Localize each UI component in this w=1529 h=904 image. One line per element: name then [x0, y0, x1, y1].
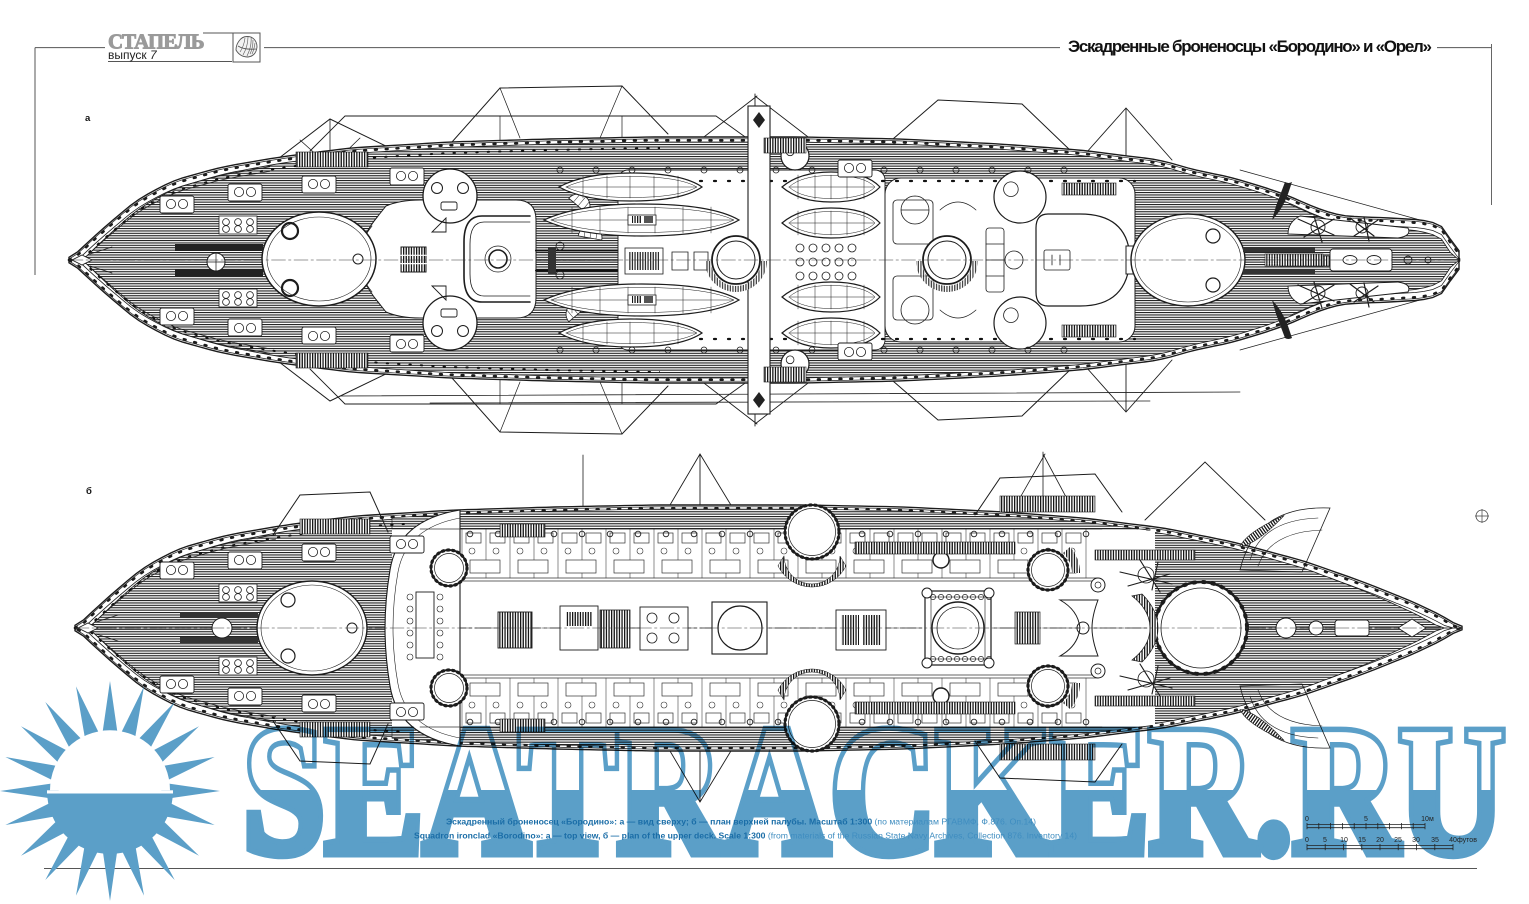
svg-text:25: 25 [1394, 837, 1402, 844]
svg-text:Squadron ironclad «Borodino»:: Squadron ironclad «Borodino»: a — top vi… [414, 831, 1077, 841]
svg-text:20: 20 [1376, 837, 1384, 844]
svg-text:0: 0 [1305, 837, 1309, 844]
svg-text:б: б [86, 486, 92, 497]
svg-text:10: 10 [1421, 816, 1429, 823]
svg-text:Эскадренный броненосец «Бороди: Эскадренный броненосец «Бородино»: а — в… [446, 817, 1036, 827]
svg-text:м: м [1429, 816, 1434, 823]
svg-text:10: 10 [1340, 837, 1348, 844]
svg-text:выпуск 7: выпуск 7 [108, 48, 158, 62]
svg-text:5: 5 [1323, 837, 1327, 844]
svg-text:15: 15 [1358, 837, 1366, 844]
svg-text:футов: футов [1457, 837, 1477, 844]
svg-text:Эскадренные броненосцы «Бороди: Эскадренные броненосцы «Бородино» и «Оре… [1068, 37, 1432, 56]
svg-text:5: 5 [1364, 816, 1368, 823]
svg-text:35: 35 [1431, 837, 1439, 844]
svg-text:0: 0 [1305, 816, 1309, 823]
svg-text:а: а [85, 113, 91, 124]
svg-text:40: 40 [1449, 837, 1457, 844]
svg-text:30: 30 [1412, 837, 1420, 844]
